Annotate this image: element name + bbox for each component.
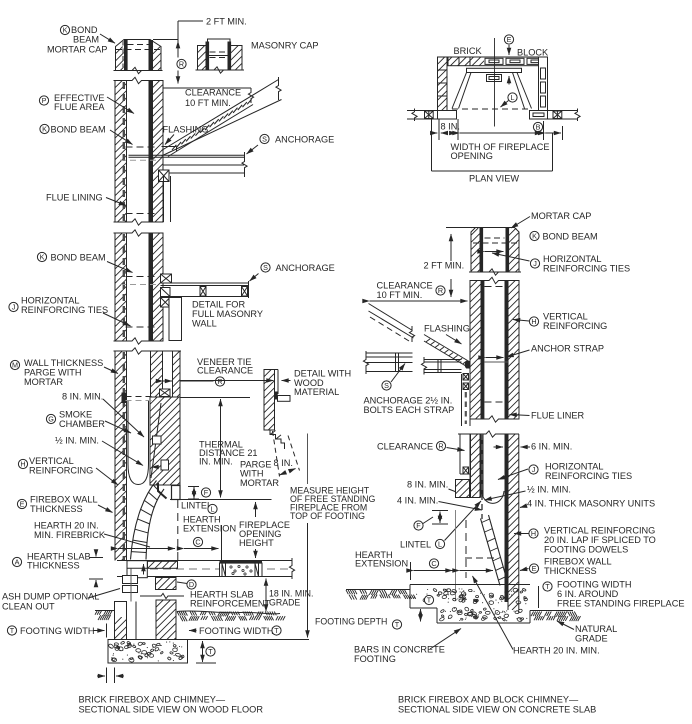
svg-text:6 IN. AROUND: 6 IN. AROUND (557, 589, 619, 599)
svg-text:VERTICAL: VERTICAL (543, 312, 588, 322)
svg-text:FOOTING WIDTH: FOOTING WIDTH (20, 626, 95, 636)
svg-text:MORTAR CAP: MORTAR CAP (47, 45, 107, 55)
svg-text:P: P (42, 96, 47, 105)
svg-text:MORTAR CAP: MORTAR CAP (531, 211, 591, 221)
svg-text:F: F (416, 521, 421, 530)
svg-text:K: K (63, 26, 68, 35)
svg-text:HORIZONTAL: HORIZONTAL (21, 296, 80, 306)
svg-text:REINFORCING TIES: REINFORCING TIES (543, 264, 630, 274)
svg-text:MASONRY CAP: MASONRY CAP (251, 41, 319, 51)
svg-text:R: R (179, 60, 184, 69)
svg-text:EXTENSION: EXTENSION (183, 524, 236, 534)
svg-text:FOOTING DOWELS: FOOTING DOWELS (544, 545, 628, 555)
svg-text:EXTENSION: EXTENSION (355, 559, 408, 569)
svg-text:MORTAR: MORTAR (240, 478, 279, 488)
svg-text:C: C (431, 559, 436, 568)
svg-text:½ IN. MIN.: ½ IN. MIN. (527, 485, 571, 495)
svg-text:B: B (536, 123, 541, 132)
svg-text:R: R (438, 286, 443, 295)
svg-text:BOND BEAM: BOND BEAM (51, 253, 106, 263)
svg-text:ANCHORAGE: ANCHORAGE (275, 135, 334, 145)
svg-text:CLEARANCE: CLEARANCE (377, 442, 433, 452)
svg-text:E: E (532, 564, 537, 573)
svg-text:8 IN. MIN.: 8 IN. MIN. (407, 480, 448, 490)
svg-text:8 IN. MIN.: 8 IN. MIN. (62, 392, 103, 402)
svg-text:M: M (12, 361, 18, 370)
svg-text:8 IN.: 8 IN. (441, 122, 460, 132)
svg-text:DETAIL FOR: DETAIL FOR (192, 300, 245, 310)
svg-text:LINTEL: LINTEL (400, 540, 431, 550)
svg-text:TOP OF FOOTING: TOP OF FOOTING (290, 511, 365, 521)
svg-text:GRADE: GRADE (269, 598, 300, 608)
svg-text:F: F (204, 488, 209, 497)
svg-text:MATERIAL: MATERIAL (294, 387, 339, 397)
svg-text:HORIZONTAL: HORIZONTAL (543, 254, 602, 264)
svg-text:T: T (10, 626, 15, 635)
svg-text:K: K (532, 232, 537, 241)
svg-text:H: H (531, 317, 536, 326)
svg-text:FIREBOX WALL: FIREBOX WALL (30, 495, 98, 505)
svg-text:L: L (438, 540, 442, 549)
svg-text:HEIGHT: HEIGHT (239, 538, 274, 548)
svg-text:D: D (189, 580, 194, 589)
svg-text:FREE STANDING FIREPLACE: FREE STANDING FIREPLACE (557, 599, 684, 609)
svg-text:K: K (40, 253, 45, 262)
svg-text:MORTAR: MORTAR (24, 377, 63, 387)
svg-text:2 FT MIN.: 2 FT MIN. (206, 17, 247, 27)
svg-text:E: E (20, 500, 25, 509)
svg-text:FIREBOX WALL: FIREBOX WALL (544, 557, 612, 567)
svg-text:CHAMBER: CHAMBER (59, 419, 105, 429)
svg-text:REINFORCING: REINFORCING (543, 321, 607, 331)
svg-text:HORIZONTAL: HORIZONTAL (545, 462, 604, 472)
svg-text:G: G (48, 415, 54, 424)
svg-text:SMOKE: SMOKE (59, 410, 92, 420)
svg-text:SECTIONAL SIDE VIEW ON WOOD FL: SECTIONAL SIDE VIEW ON WOOD FLOOR (79, 705, 264, 715)
svg-text:T: T (427, 596, 432, 605)
svg-text:FLUE AREA: FLUE AREA (54, 102, 105, 112)
svg-text:L: L (211, 505, 215, 514)
svg-text:J: J (12, 303, 16, 312)
svg-text:A: A (15, 558, 20, 567)
svg-text:R: R (438, 442, 443, 451)
svg-text:FOOTING WIDTH: FOOTING WIDTH (557, 580, 632, 590)
svg-text:T: T (274, 626, 279, 635)
svg-text:IN. MIN.: IN. MIN. (199, 457, 233, 467)
svg-text:2 FT MIN.: 2 FT MIN. (424, 261, 465, 271)
svg-text:4 IN. THICK MASONRY UNITS: 4 IN. THICK MASONRY UNITS (527, 499, 655, 509)
svg-text:PARGE WITH: PARGE WITH (24, 368, 82, 378)
svg-text:FOOTING DEPTH: FOOTING DEPTH (315, 617, 387, 627)
svg-text:6 IN. MIN.: 6 IN. MIN. (531, 442, 572, 452)
svg-text:S: S (262, 135, 267, 144)
svg-text:½ IN. MIN.: ½ IN. MIN. (55, 436, 99, 446)
svg-text:BRICK: BRICK (454, 46, 483, 56)
svg-text:CLEARANCE: CLEARANCE (197, 366, 253, 376)
svg-text:WITH: WITH (240, 469, 263, 479)
svg-text:FOOTING: FOOTING (354, 654, 396, 664)
svg-text:WALL: WALL (192, 319, 217, 329)
svg-text:OPENING: OPENING (451, 151, 493, 161)
svg-text:CLEARANCE: CLEARANCE (377, 281, 433, 291)
svg-text:4 IN. MIN.: 4 IN. MIN. (397, 496, 438, 506)
svg-text:T: T (545, 582, 550, 591)
svg-text:BARS IN CONCRETE: BARS IN CONCRETE (354, 645, 445, 655)
svg-text:BOND BEAM: BOND BEAM (543, 232, 598, 242)
svg-text:REINFORCING TIES: REINFORCING TIES (21, 305, 108, 315)
svg-text:FLUE LINER: FLUE LINER (531, 411, 584, 421)
svg-text:C: C (195, 538, 200, 547)
svg-text:THICKNESS: THICKNESS (544, 566, 597, 576)
svg-text:GRADE: GRADE (575, 634, 608, 644)
svg-text:THICKNESS: THICKNESS (30, 504, 83, 514)
svg-text:CLEAN OUT: CLEAN OUT (2, 602, 55, 612)
svg-text:VERTICAL: VERTICAL (29, 456, 74, 466)
svg-text:REINFORCING TIES: REINFORCING TIES (545, 471, 632, 481)
svg-text:WALL THICKNESS: WALL THICKNESS (24, 358, 103, 368)
svg-text:BOND BEAM: BOND BEAM (51, 125, 106, 135)
svg-text:J: J (532, 465, 536, 474)
svg-text:DETAIL WITH: DETAIL WITH (294, 369, 351, 379)
svg-text:20 IN. LAP IF SPLICED TO: 20 IN. LAP IF SPLICED TO (544, 535, 656, 545)
svg-text:H: H (531, 529, 536, 538)
svg-text:FLASHING: FLASHING (424, 324, 470, 334)
svg-text:J: J (533, 259, 537, 268)
svg-text:PLAN VIEW: PLAN VIEW (469, 174, 519, 184)
svg-text:SECTIONAL SIDE VIEW ON CONCRET: SECTIONAL SIDE VIEW ON CONCRETE SLAB (398, 705, 596, 715)
svg-text:FOOTING WIDTH: FOOTING WIDTH (199, 626, 274, 636)
svg-text:H: H (20, 460, 25, 469)
svg-text:ANCHORAGE 2½ IN.: ANCHORAGE 2½ IN. (364, 396, 453, 406)
svg-text:FLUE LINING: FLUE LINING (46, 193, 103, 203)
svg-text:HEARTH 20 IN. MIN.: HEARTH 20 IN. MIN. (513, 646, 600, 656)
svg-text:VERTICAL REINFORCING: VERTICAL REINFORCING (544, 526, 655, 536)
svg-text:S: S (384, 381, 389, 390)
svg-text:K: K (42, 125, 47, 134)
svg-text:ANCHOR STRAP: ANCHOR STRAP (531, 344, 604, 354)
svg-text:BRICK FIREBOX AND CHIMNEY—: BRICK FIREBOX AND CHIMNEY— (79, 695, 226, 705)
svg-text:FULL MASONRY: FULL MASONRY (192, 309, 263, 319)
svg-text:ANCHORAGE: ANCHORAGE (276, 263, 335, 273)
svg-text:REINFORCING: REINFORCING (29, 466, 93, 476)
svg-text:R: R (217, 377, 222, 386)
svg-text:E: E (507, 35, 512, 44)
svg-text:THICKNESS: THICKNESS (27, 561, 80, 571)
svg-text:ASH DUMP OPTIONAL: ASH DUMP OPTIONAL (2, 592, 99, 602)
svg-text:CLEARANCE: CLEARANCE (185, 88, 241, 98)
svg-text:HEARTH 20 IN.: HEARTH 20 IN. (34, 521, 99, 531)
svg-text:BRICK FIREBOX AND BLOCK CHIMNE: BRICK FIREBOX AND BLOCK CHIMNEY— (398, 695, 579, 705)
svg-text:T: T (208, 647, 213, 656)
svg-text:BOND: BOND (71, 25, 98, 35)
svg-text:BLOCK: BLOCK (517, 48, 549, 58)
svg-text:BOLTS EACH STRAP: BOLTS EACH STRAP (364, 405, 455, 415)
svg-text:BEAM: BEAM (73, 35, 99, 45)
svg-text:10 FT MIN.: 10 FT MIN. (377, 290, 423, 300)
svg-text:S: S (263, 263, 268, 272)
svg-text:NATURAL: NATURAL (575, 624, 617, 634)
svg-text:FLASHING: FLASHING (163, 125, 209, 135)
svg-text:10 FT MIN.: 10 FT MIN. (185, 98, 231, 108)
svg-text:T: T (395, 620, 400, 629)
svg-text:MIN. FIREBRICK: MIN. FIREBRICK (34, 530, 106, 540)
svg-text:L: L (511, 93, 515, 102)
svg-text:REINFORCEMENT: REINFORCEMENT (190, 599, 271, 609)
